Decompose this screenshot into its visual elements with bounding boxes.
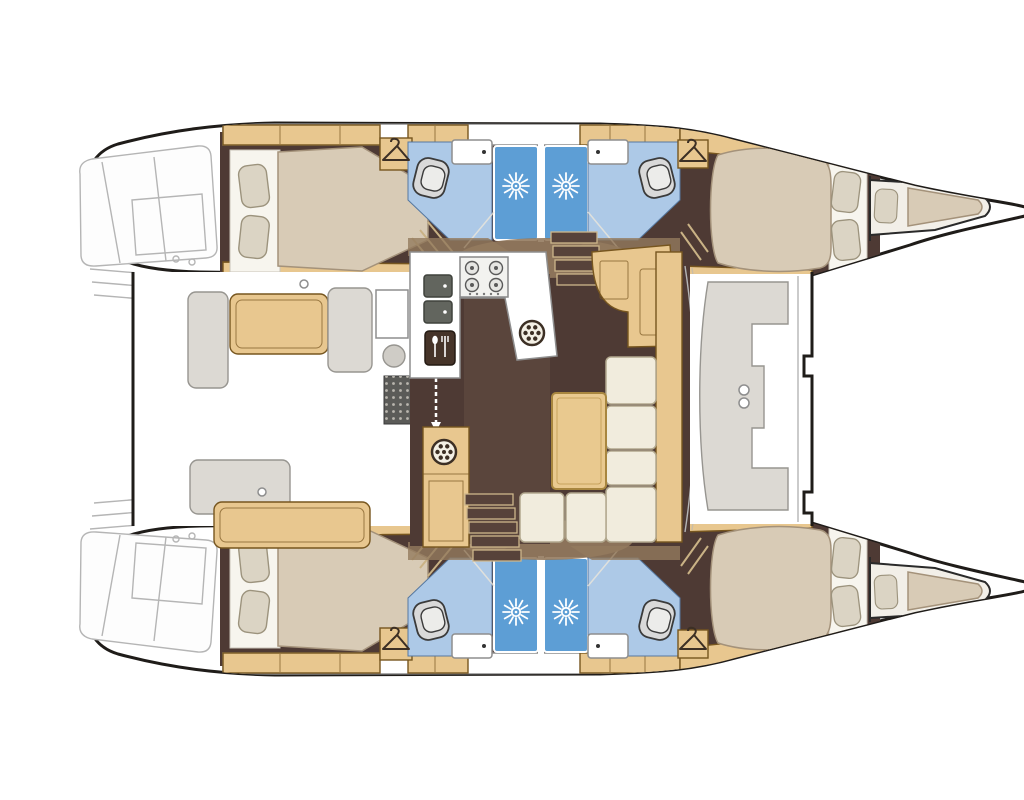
cockpit-console [376,290,408,338]
floor-plan-figure: Catamaran yacht interior floor plan (top… [40,16,1024,784]
companionway-stairs-bottom [465,494,521,561]
cockpit-bench [230,294,328,354]
hatch-wheel-icon [432,440,456,464]
fridge-fork-spoon-icon [425,331,455,365]
sofa-cushion [566,493,606,542]
sofa-cushion [606,451,656,485]
hatch-wheel-icon [520,321,544,345]
stove [460,257,508,297]
deck-fitting [739,385,749,395]
forward-cockpit [690,272,812,526]
cockpit-sink [383,345,405,367]
bridgedeck [133,232,812,561]
sofa-backrest [656,252,682,542]
cockpit-seat [328,288,372,372]
helm-seat [188,292,228,388]
sofa-corner-cushion [606,487,656,542]
salon-table [552,393,606,489]
deck-fitting [739,398,749,408]
cockpit-bench [214,502,370,548]
sofa-cushion [606,357,656,404]
catamaran-floor-plan [40,16,1024,784]
sofa-cushion [520,493,564,542]
sofa-cushion [606,406,656,449]
aft-cockpit [133,272,422,548]
